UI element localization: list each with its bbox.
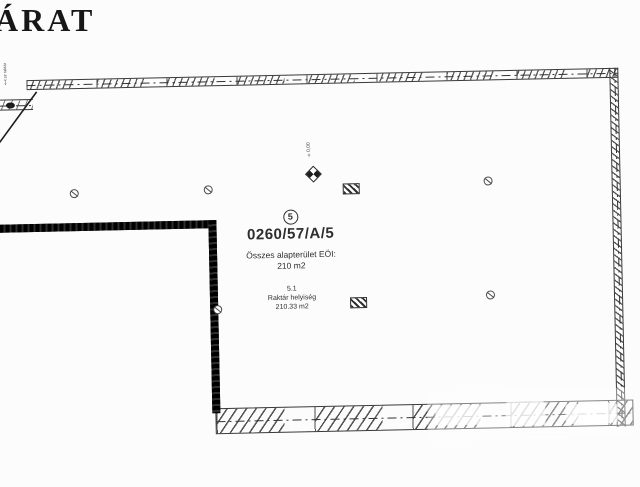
parcel-number: 0260/57/A/5 [225, 224, 355, 244]
drain-circle-icon [486, 290, 495, 299]
margin-annotation: t.sz raktár ↓ [2, 50, 17, 90]
hatched-column-icon [343, 183, 360, 194]
down-arrow-icon: ↓ [3, 78, 7, 87]
floor-plan: t.sz raktár ↓ ±0,00 5 0260/57/A/5 Összes… [0, 0, 640, 487]
drain-circle-icon [213, 305, 222, 314]
total-area-value: 210 m2 [226, 259, 356, 272]
margin-annotation-text: t.sz raktár [2, 51, 8, 81]
watermark-overlay [427, 387, 634, 441]
unit-info-block: 5 0260/57/A/5 Összes alapterület EÖI: 21… [225, 205, 357, 313]
level-marker: ±0,00 [298, 140, 329, 187]
leader-line [0, 90, 46, 147]
hatched-column-icon [350, 297, 367, 308]
room-area: 210.33 m2 [227, 301, 357, 313]
level-marker-label: ±0,00 [306, 142, 312, 158]
drain-circle-icon [204, 185, 213, 194]
room-info: 5.1 Raktár helyiség 210.33 m2 [227, 283, 358, 313]
wall-left-vertical [208, 220, 220, 413]
wall-right [609, 68, 626, 427]
unit-number-circle: 5 [283, 209, 298, 224]
wall-centerline [26, 73, 618, 86]
wall-left-horizontal [0, 220, 216, 233]
benchmark-diamond-icon [305, 166, 322, 183]
wall-top [26, 68, 618, 90]
watermark-blob [505, 401, 545, 426]
drain-circle-icon [483, 176, 492, 185]
watermark-blob [435, 405, 481, 426]
wall-centerline [614, 68, 623, 427]
watermark-blob [565, 403, 617, 424]
drain-circle-icon [70, 189, 79, 198]
